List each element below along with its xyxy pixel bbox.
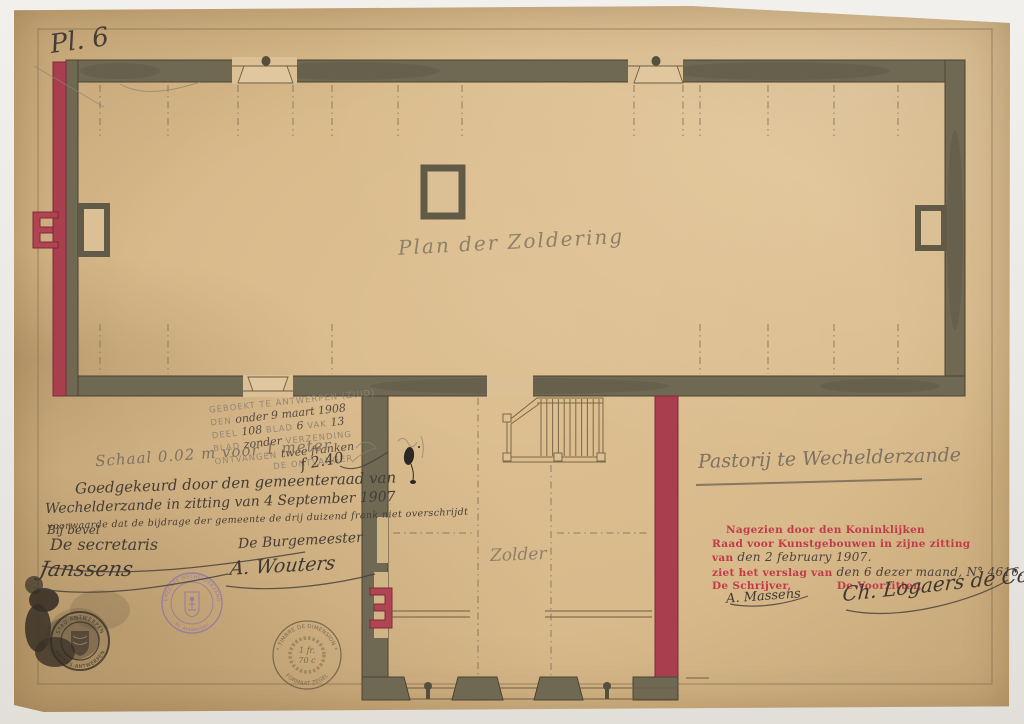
municipality-stamp-bottom-text: · Pr. Antwerpen · <box>170 620 213 633</box>
royal-board-line4-print: ziet het verslag van <box>712 567 833 579</box>
svg-text:· Pr. Antwerpen ·: · Pr. Antwerpen · <box>170 620 213 633</box>
dimension-stamp: * TIMBRE DE DIMENSION * FORMAAT ZEGEL 1 … <box>273 621 341 689</box>
left-wall-recess <box>81 206 107 254</box>
reg-stamp-vak-value: 13 <box>330 415 345 429</box>
secretary-signature: Janssens <box>37 557 135 581</box>
dimension-stamp-value-top: 1 fr. <box>299 646 315 655</box>
red-left-wall <box>53 62 66 396</box>
main-plan-walls <box>53 60 965 396</box>
wreath-icon <box>290 638 324 672</box>
central-chimney <box>424 168 462 216</box>
plan-drawing: STAD ANTWERPEN ANVERS-ANTWERPEN GEMEENTE… <box>0 0 1024 724</box>
royal-board-line3-hand: den 2 february 1907. <box>737 550 871 564</box>
red-right-wall <box>655 396 678 688</box>
annex-guide-lines <box>390 398 652 675</box>
secretary-label: De secretaris <box>50 535 158 554</box>
annex-plan-label: Zolder <box>490 544 547 566</box>
royal-board-line1: Nagezien door den Koninklijken <box>726 524 925 536</box>
dimension-stamp-value-bottom: 70 c <box>298 656 316 665</box>
scan-background: STAD ANTWERPEN ANVERS-ANTWERPEN GEMEENTE… <box>0 0 1024 724</box>
right-wall-recess <box>918 208 944 248</box>
staircase <box>503 398 606 462</box>
royal-board-line3-print: van <box>712 552 733 564</box>
reg-stamp-blad-value: 6 <box>296 419 304 433</box>
royal-board-line2: Raad voor Kunstgebouwen in zijne zitting <box>712 538 970 550</box>
